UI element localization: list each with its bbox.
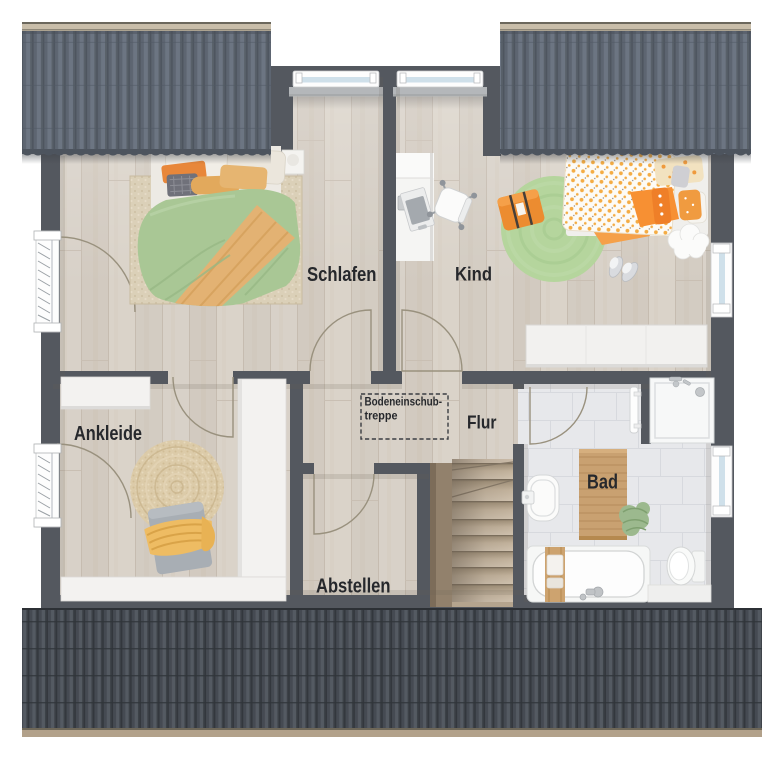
svg-text:Flur: Flur [467, 412, 497, 433]
svg-text:Bad: Bad [587, 472, 618, 494]
svg-text:Schlafen: Schlafen [307, 263, 377, 286]
svg-text:Abstellen: Abstellen [316, 575, 391, 598]
svg-text:treppe: treppe [365, 410, 398, 423]
svg-text:Kind: Kind [455, 264, 492, 286]
svg-text:Bodeneinschub-: Bodeneinschub- [365, 396, 443, 409]
svg-text:Ankleide: Ankleide [74, 422, 142, 445]
